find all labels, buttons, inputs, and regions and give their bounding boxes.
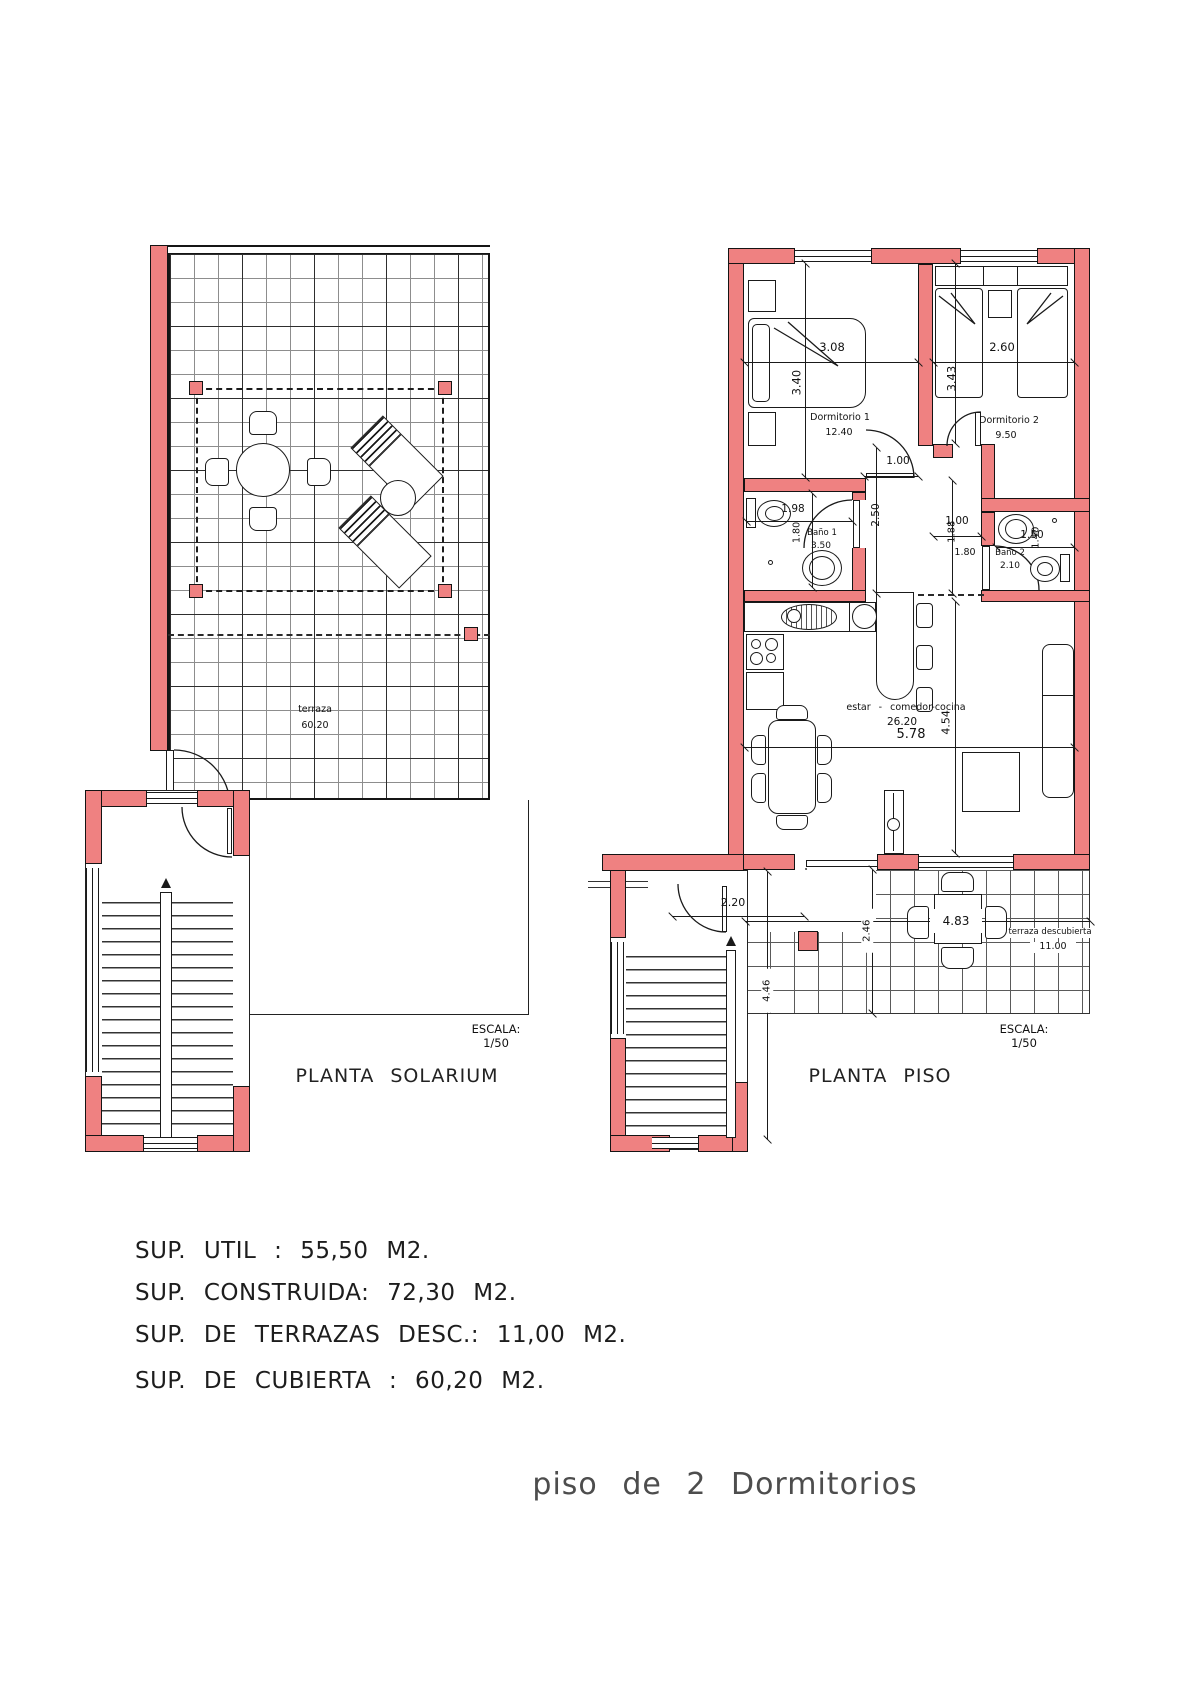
- stair-direction-arrow: [726, 936, 736, 946]
- apartment-top-wall: [728, 248, 795, 264]
- living-slider-window: [919, 856, 1013, 868]
- dining-table: [768, 720, 816, 814]
- dim-hall-width: 1.00: [876, 455, 920, 467]
- stair-direction-arrow: [161, 878, 171, 888]
- dorm2-window: [961, 250, 1037, 262]
- bano2-south-wall: [981, 590, 1090, 602]
- pergola-post: [438, 381, 452, 395]
- escala-value: 1/50: [463, 1036, 529, 1050]
- stairwell-wall: [233, 790, 250, 856]
- dining-chair: [751, 735, 766, 765]
- summary-line-util: SUP. UTIL : 55,50 M2.: [135, 1238, 430, 1264]
- dorm2-area: 9.50: [976, 431, 1036, 442]
- dorm-divider-wall: [918, 264, 933, 446]
- kitchen-bowl: [852, 604, 877, 629]
- escala-block-left: ESCALA: 1/50: [463, 1022, 529, 1050]
- bano1-drain-dot: [768, 560, 773, 565]
- dim-dorm1-depth: 3.40: [790, 361, 803, 405]
- dorm2-shelf-divider: [983, 266, 984, 286]
- apartment-left-wall: [728, 248, 744, 870]
- kitchen-cabinet: [746, 672, 784, 710]
- solarium-lower-area: [230, 800, 529, 1015]
- dorm2-bed-fold: [1021, 292, 1065, 328]
- kitchen-sink-drain: [787, 609, 801, 623]
- dining-chair: [776, 705, 808, 720]
- dorm1-door-swing-arc: [866, 430, 914, 478]
- kitchen-counter-divider: [849, 602, 850, 632]
- dim-line: [955, 602, 956, 854]
- dim-dorm2-width: 2.60: [970, 341, 1034, 354]
- patio-chair: [249, 411, 277, 435]
- coffee-table: [962, 752, 1020, 812]
- dim-stairs-length: 4.46: [761, 969, 773, 1013]
- stairwell-window: [147, 792, 197, 804]
- pergola-post: [189, 584, 203, 598]
- stairwell-window: [611, 942, 624, 1034]
- dorm1-window: [795, 250, 871, 262]
- dorm1-name: Dormitorio 1: [790, 413, 890, 424]
- apartment-right-wall: [1074, 248, 1090, 870]
- stove-burner: [751, 639, 761, 649]
- dim-terrace-width: 4.83: [930, 909, 982, 933]
- tv-unit-knob: [887, 818, 900, 831]
- terrace-name: terraza descubierta: [1008, 928, 1092, 938]
- dim-dorm2-depth: 3.43: [945, 357, 958, 401]
- dorm2-bed-fold: [937, 292, 981, 328]
- stairwell-wall: [233, 1086, 250, 1152]
- dim-line: [745, 921, 1090, 922]
- dorm1-nightstand: [748, 412, 776, 446]
- dorm1-area: 12.40: [809, 428, 869, 439]
- bano2-west-wall: [981, 512, 995, 546]
- escala-label: ESCALA:: [463, 1022, 529, 1036]
- terrace-chair: [907, 906, 929, 939]
- terrace-chair: [941, 947, 974, 969]
- patio-table: [236, 443, 290, 497]
- floorplan-sheet: terraza 60.20 ESCALA: 1/50 PLANTA SOLARI…: [0, 0, 1200, 1696]
- terrace-post: [798, 931, 818, 951]
- dorm1-south-wall: [744, 478, 866, 492]
- breakfast-bar: [876, 592, 914, 700]
- bano2-north-wall: [981, 498, 1090, 512]
- bano2-area: 2.10: [988, 561, 1032, 571]
- dim-living-width: 5.78: [883, 728, 939, 743]
- bano1-south-wall: [744, 590, 866, 602]
- bano2-name: Baño 2: [986, 549, 1034, 559]
- bano2-toilet-bowl-inner: [1037, 562, 1053, 576]
- stair-rail: [160, 892, 172, 1138]
- dim-bano2-depth: 1.40: [1030, 518, 1042, 558]
- dim-dorm1-width: 3.08: [800, 341, 864, 354]
- terraza-label: terraza: [280, 705, 350, 716]
- side-table: [380, 480, 416, 516]
- stove-burner: [750, 652, 763, 665]
- dim-line: [744, 362, 918, 363]
- stairwell-wall: [85, 790, 102, 864]
- terrace-area: 11.00: [1030, 942, 1076, 953]
- stairwell-door-swing-arc: [182, 807, 232, 857]
- pergola-post: [438, 584, 452, 598]
- plan-title-piso: PLANTA PISO: [798, 1066, 962, 1088]
- stairwell-window: [652, 1137, 698, 1149]
- sofa: [1042, 644, 1074, 798]
- dim-line: [672, 916, 804, 917]
- escala-block-right: ESCALA: 1/50: [991, 1022, 1057, 1050]
- dorm2-shelf-divider: [1017, 266, 1018, 286]
- dining-chair: [751, 773, 766, 803]
- stairwell-window: [86, 868, 99, 1072]
- patio-chair: [249, 507, 277, 531]
- stove-burner: [765, 638, 778, 651]
- stairwell-wall: [610, 870, 626, 938]
- roof-edge-dashed-line: [168, 634, 490, 636]
- bar-stool: [916, 603, 933, 628]
- bano2-drain-dot: [1052, 518, 1057, 523]
- dim-terrace-depth: 2.46: [861, 909, 873, 953]
- dim-bano2-side: 1.80: [947, 548, 983, 559]
- pergola-post: [189, 381, 203, 395]
- stove-burner: [766, 653, 776, 663]
- dim-living-depth: 4.54: [941, 700, 954, 744]
- dining-chair: [776, 815, 808, 830]
- terrace-chair: [985, 906, 1007, 939]
- dim-line: [955, 264, 956, 444]
- stair-treads: [626, 956, 726, 1136]
- dim-line: [864, 476, 918, 477]
- escala-label: ESCALA:: [991, 1022, 1057, 1036]
- dim-hall-length: 2.50: [870, 493, 882, 537]
- solarium-parapet: [168, 245, 490, 254]
- bano2-toilet-tank: [1060, 554, 1070, 582]
- bano1-area: 3.50: [799, 541, 843, 551]
- sheet-title: piso de 2 Dormitorios: [525, 1468, 925, 1503]
- patio-chair: [205, 458, 229, 486]
- solarium-left-wall: [150, 245, 168, 805]
- apartment-bottom-wall: [877, 854, 919, 870]
- dorm2-nightstand: [988, 290, 1012, 318]
- summary-line-terrazas: SUP. DE TERRAZAS DESC.: 11,00 M2.: [135, 1322, 626, 1348]
- dim-stairs-width: 2.20: [698, 897, 768, 910]
- plan-title-solarium: PLANTA SOLARIUM: [275, 1066, 519, 1088]
- stair-rail: [726, 950, 736, 1138]
- dining-chair: [817, 735, 832, 765]
- dining-chair: [817, 773, 832, 803]
- summary-line-construida: SUP. CONSTRUIDA: 72,30 M2.: [135, 1280, 517, 1306]
- apartment-top-wall: [871, 248, 961, 264]
- sofa-cushion-line: [1042, 695, 1074, 696]
- stairwell-wall: [85, 1135, 144, 1152]
- dorm1-nightstand: [748, 280, 776, 312]
- dim-line: [744, 747, 1074, 748]
- escala-value: 1/50: [991, 1036, 1057, 1050]
- dorm2-south-wall: [933, 444, 953, 458]
- patio-chair: [307, 458, 331, 486]
- terraza-area: 60.20: [280, 721, 350, 732]
- stairwell-window: [144, 1137, 197, 1149]
- summary-line-cubierta: SUP. DE CUBIERTA : 60,20 M2.: [135, 1368, 545, 1394]
- terrace-chair: [941, 872, 974, 892]
- apartment-bottom-wall: [1013, 854, 1090, 870]
- dim-line: [805, 264, 806, 478]
- bano1-name: Baño 1: [798, 529, 846, 539]
- stairwell-wall: [602, 854, 744, 871]
- dorm2-name: Dormitorio 2: [959, 416, 1059, 427]
- pergola-post: [464, 627, 478, 641]
- bar-stool: [916, 645, 933, 670]
- stairwell-door-leaf: [227, 808, 232, 854]
